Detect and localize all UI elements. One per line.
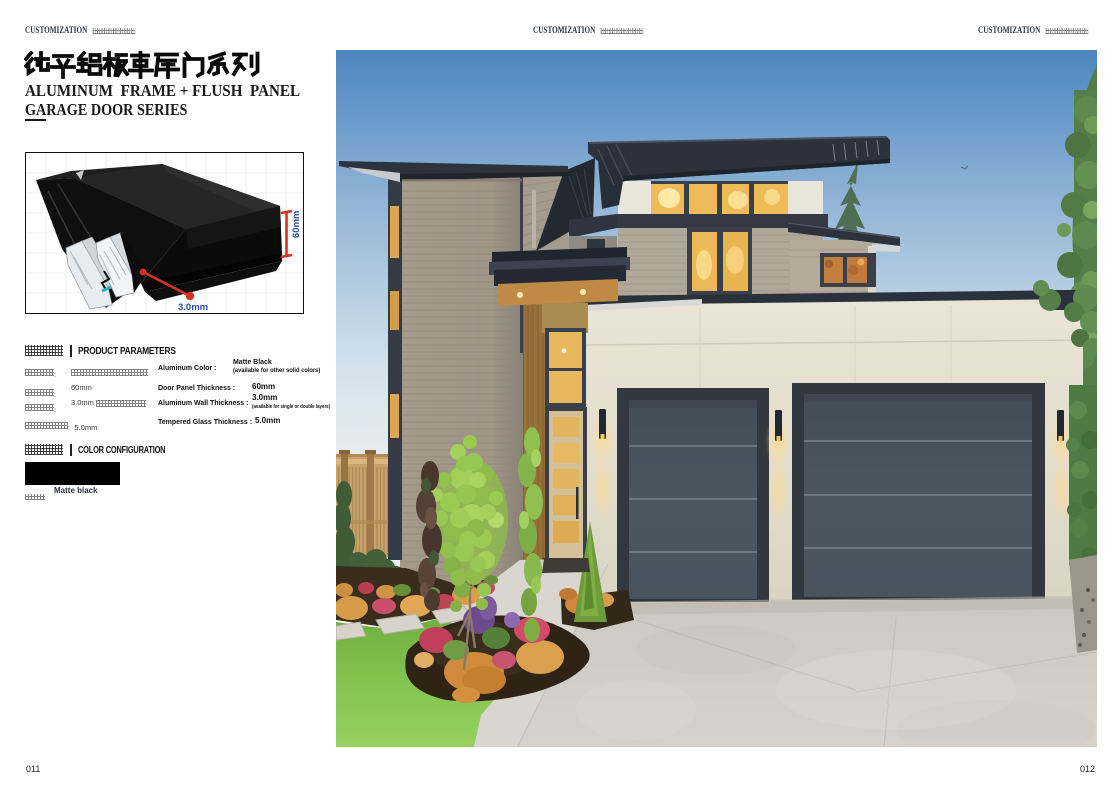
svg-text:3.0mm: 3.0mm	[178, 302, 208, 313]
svg-text:60mm: 60mm	[291, 211, 302, 238]
